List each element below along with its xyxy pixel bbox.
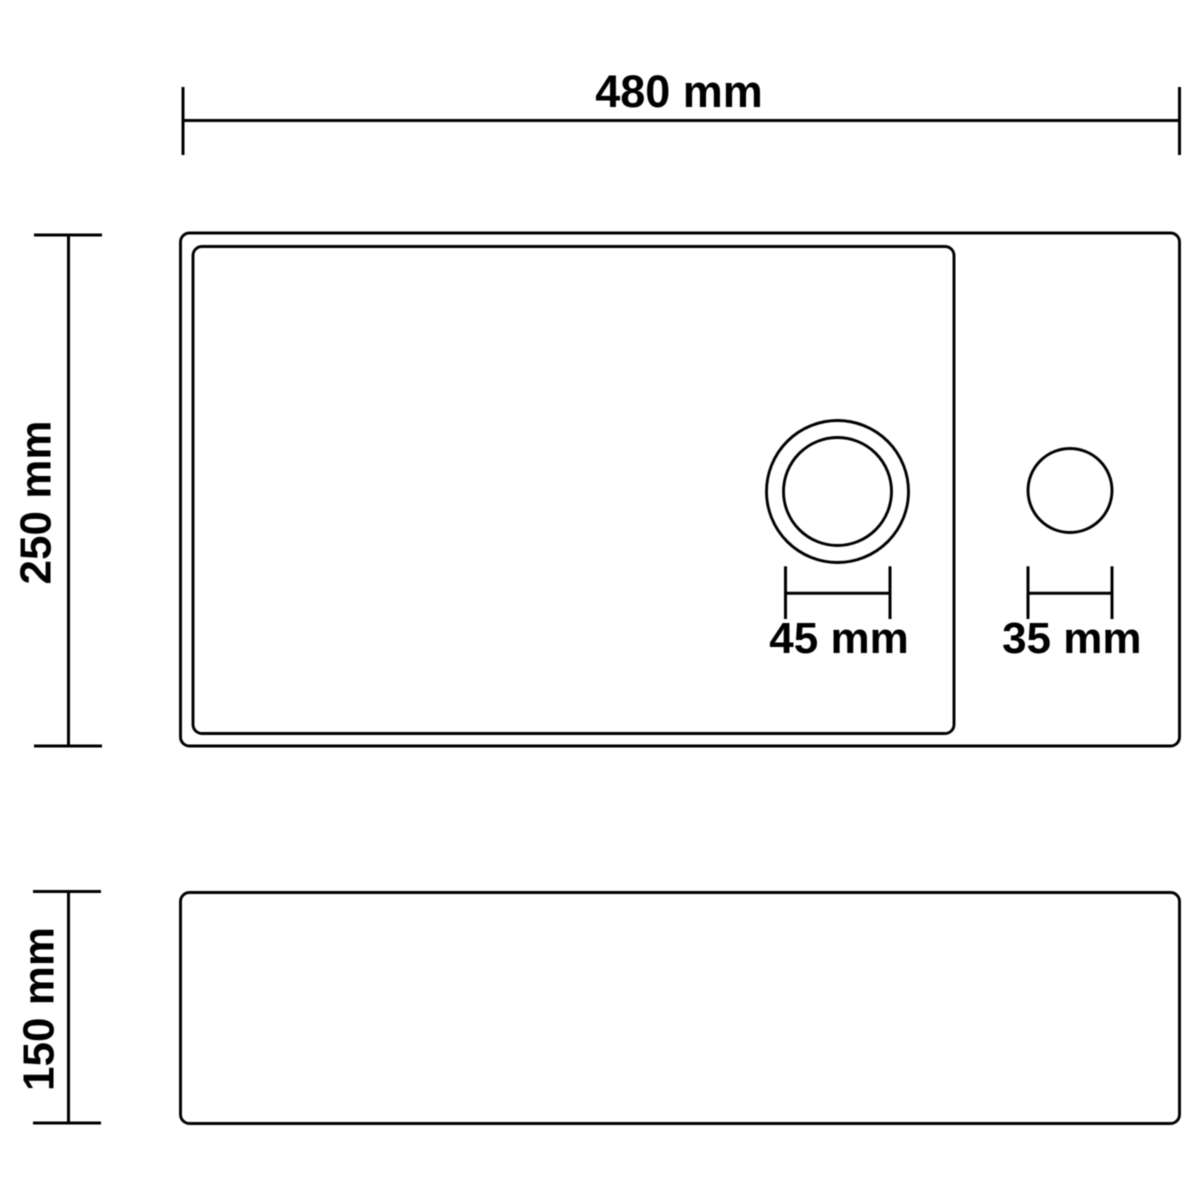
svg-text:480 mm: 480 mm [595, 66, 763, 117]
svg-text:45 mm: 45 mm [769, 614, 908, 663]
svg-text:250 mm: 250 mm [12, 421, 61, 585]
svg-text:150 mm: 150 mm [15, 927, 64, 1091]
svg-text:35 mm: 35 mm [1002, 614, 1141, 663]
